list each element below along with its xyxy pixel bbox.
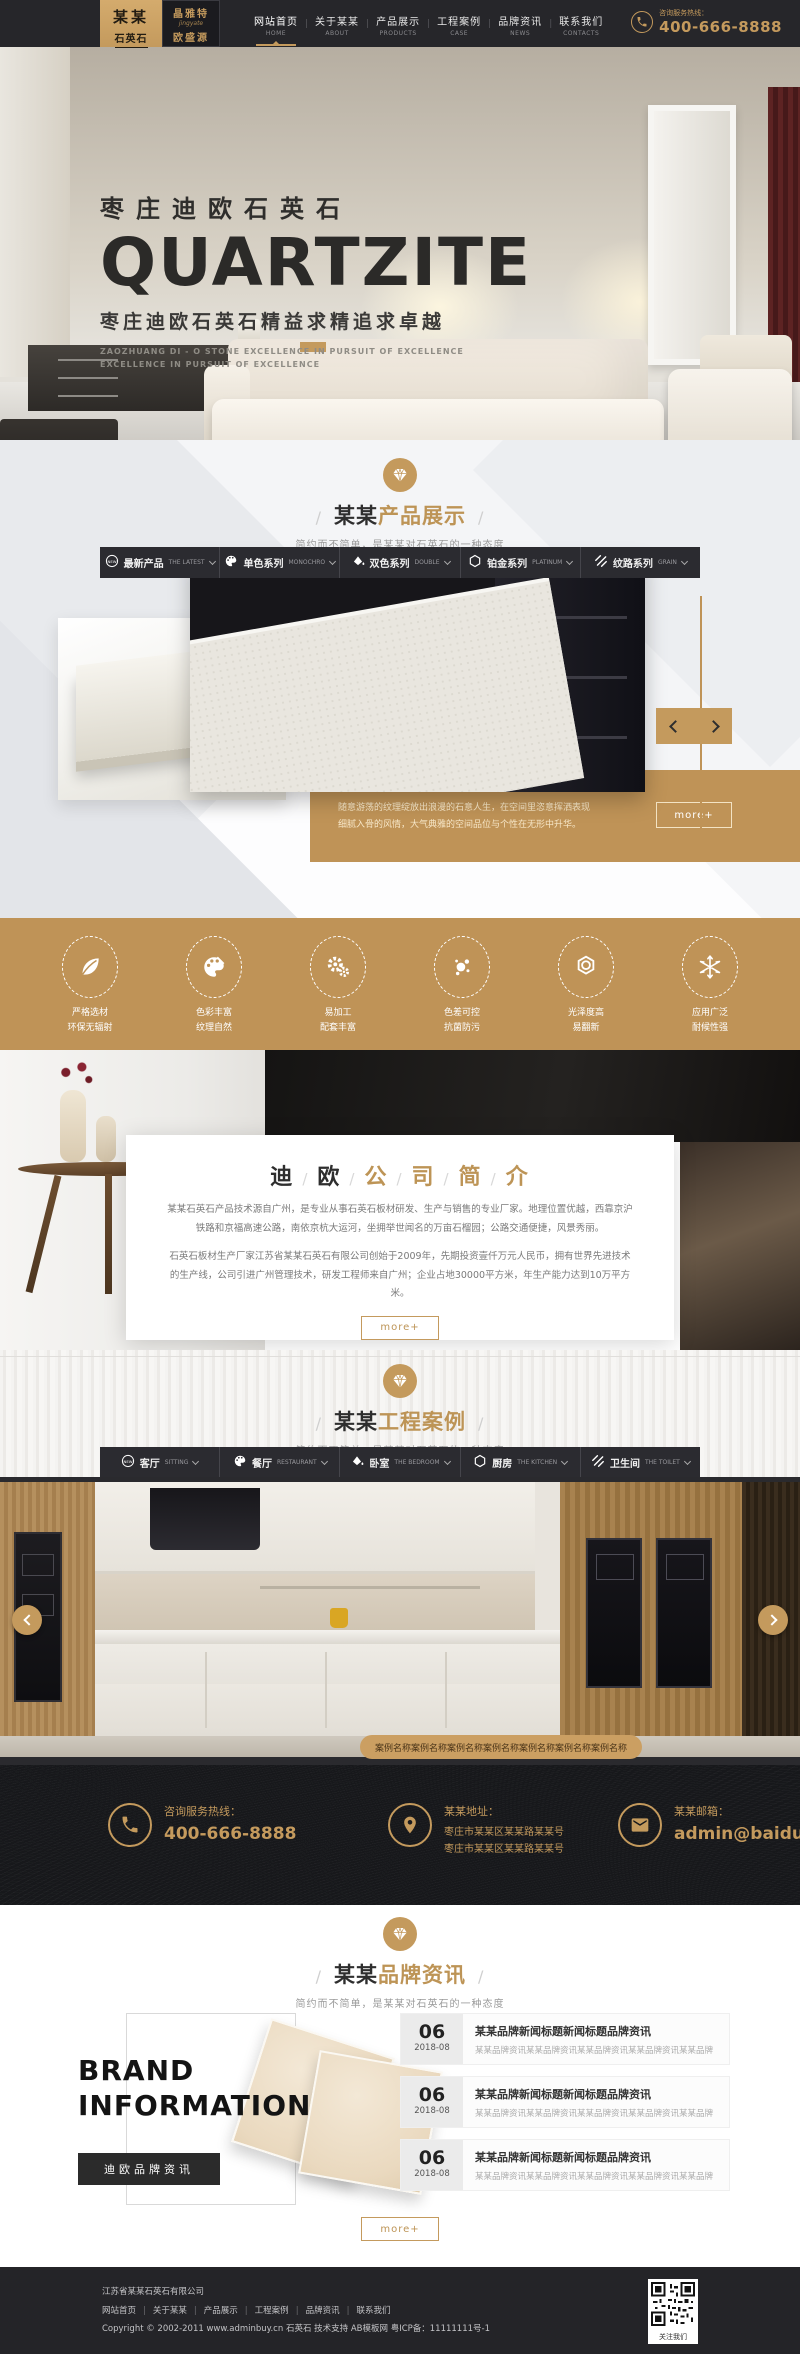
logo[interactable]: 某某 石英石 (100, 0, 162, 47)
contact-email-label: 某某邮箱： (674, 1803, 800, 1819)
footer-copyright: Copyright © 2002-2011 www.adminbuy.cn 石英… (102, 2320, 490, 2339)
feature-label: 配套丰富 (302, 1021, 374, 1036)
contact-address-line1: 枣庄市某某区某某路某某号 (444, 1824, 564, 1841)
contact-address-label: 某某地址： (444, 1803, 564, 1819)
tab-label: 客厅 (140, 1455, 160, 1470)
palette-icon (224, 553, 238, 572)
about-paragraph-2: 石英石板材生产厂家江苏省某某石英石有限公司创始于2009年，先期投资壹仟万元人民… (165, 1248, 635, 1304)
nav-item-home[interactable]: 网站首页 HOME (248, 11, 304, 37)
feature-label: 应用广泛 (674, 1006, 746, 1021)
tab-label-en: GRAIN (658, 559, 677, 566)
carousel-arrows (656, 708, 732, 744)
hero-photo-wall (0, 47, 70, 377)
nav-label: 产品展示 (370, 13, 426, 28)
tab-label-en: THE BEDROOM (394, 1459, 439, 1466)
palette-icon (233, 1453, 247, 1472)
phone-icon (631, 11, 653, 33)
next-arrow-icon (766, 1614, 777, 1625)
hotline-number: 400-666-8888 (659, 18, 782, 36)
footer-company: 江苏省某某石英石有限公司 (102, 2283, 490, 2302)
tab-toilet[interactable]: 卫生间 THE TOILET (581, 1447, 700, 1477)
tab-label: 最新产品 (124, 555, 164, 570)
products-section: /某某产品展示/ 简约而不简单，是某某对石英石的一种态度 NEW 最新产品 TH… (0, 440, 800, 918)
nav-label: 联系我们 (553, 13, 609, 28)
footer-link-contacts[interactable]: 联系我们 (356, 2306, 390, 2316)
title-prefix: 某某 (334, 504, 378, 528)
tab-label-en: THE KITCHEN (517, 1459, 557, 1466)
products-title: /某某产品展示/ (0, 500, 800, 530)
footer-links: 网站首页关于某某产品展示工程案例品牌资讯联系我们 (102, 2302, 490, 2321)
tab-kitchen[interactable]: 厨房 THE KITCHEN (461, 1447, 581, 1477)
feature-label: 严格选材 (54, 1006, 126, 1021)
hero-caption-line1: ZAOZHUANG DI - O STONE EXCELLENCE IN PUR… (100, 346, 532, 359)
about-photo-dark-room (265, 1050, 800, 1142)
news-day: 06 (401, 2084, 463, 2106)
case-slider: 案例名称案例名称案例名称案例名称案例名称案例名称案例名称 (0, 1477, 800, 1765)
palette-icon (186, 936, 242, 998)
cases-title: /某某工程案例/ (0, 1406, 800, 1436)
news-item[interactable]: 06 2018-08 某某品牌新闻标题新闻标题品牌资讯 某某品牌资讯某某品牌资讯… (400, 2139, 730, 2191)
news-item[interactable]: 06 2018-08 某某品牌新闻标题新闻标题品牌资讯 某某品牌资讯某某品牌资讯… (400, 2013, 730, 2065)
hero-photo-chair-seat (668, 369, 792, 440)
tab-label: 卫生间 (610, 1455, 640, 1470)
leaf-icon (62, 936, 118, 998)
feature-processing: 易加工配套丰富 (302, 936, 374, 1050)
gears-icon (310, 936, 366, 998)
logo-secondary: 晶雅特 jingyate 欧盛源 (162, 0, 220, 47)
hero-photo-mirror (648, 105, 736, 365)
nav-label: 关于某某 (309, 13, 365, 28)
location-pin-icon (388, 1803, 432, 1847)
brand-information-block: BRAND INFORMATION 迪欧品牌资讯 (78, 2005, 408, 2220)
nav-label-en: CONTACTS (553, 30, 609, 37)
feature-durability: 应用广泛耐候性强 (674, 936, 746, 1050)
nav-item-products[interactable]: 产品展示 PRODUCTS (370, 11, 426, 37)
prev-arrow-icon[interactable] (669, 720, 682, 733)
news-date: 2018-08 (401, 2169, 463, 2179)
caption-line1: 随意游荡的纹理绽放出浪漫的石意人生，在空间里恣意挥洒表现 (338, 800, 590, 817)
page: 某某 石英石 晶雅特 jingyate 欧盛源 网站首页 HOME | 关于某某… (0, 0, 800, 2354)
chevron-down-icon (192, 1457, 199, 1464)
feature-label: 易翻新 (550, 1021, 622, 1036)
svg-text:NEW: NEW (123, 1458, 132, 1463)
nav-item-case[interactable]: 工程案例 CASE (431, 11, 487, 37)
brand-news-button[interactable]: 迪欧品牌资讯 (78, 2153, 220, 2185)
feature-antibacterial: 色差可控抗菌防污 (426, 936, 498, 1050)
stripes-icon (594, 553, 608, 572)
nav-item-about[interactable]: 关于某某 ABOUT (309, 11, 365, 37)
tab-label: 铂金系列 (487, 555, 527, 570)
logo-brand1: 晶雅特 (163, 5, 219, 20)
contact-address: 某某地址： 枣庄市某某区某某路某某号 枣庄市某某区某某路某某号 (388, 1803, 564, 1858)
nav-item-contacts[interactable]: 联系我们 CONTACTS (553, 11, 609, 37)
title-main: 品牌资讯 (378, 1963, 466, 1987)
tab-double-color-series[interactable]: 双色系列 DOUBLE (340, 547, 460, 578)
tab-label: 卧室 (369, 1455, 389, 1470)
hero-photo-ottoman (0, 419, 118, 440)
logo-brand2: 欧盛源 (163, 29, 219, 44)
hero-banner: 枣庄迪欧石英石 QUARTZITE 枣庄迪欧石英石精益求精追求卓越 ZAOZHU… (0, 47, 800, 440)
news-list: 06 2018-08 某某品牌新闻标题新闻标题品牌资讯 某某品牌资讯某某品牌资讯… (400, 2013, 730, 2202)
nav-label-en: ABOUT (309, 30, 365, 37)
qr-code: 关注我们 (648, 2279, 698, 2344)
footer-link-products[interactable]: 产品展示 (204, 2306, 255, 2316)
hotline-label: 咨询服务热线： (659, 8, 782, 18)
feature-label: 光泽度高 (550, 1006, 622, 1021)
tab-label-en: PLATINUM (532, 559, 562, 566)
contact-email-value: admin@baidu.com (674, 1824, 800, 1844)
snowflake-icon (682, 936, 738, 998)
slider-next-button[interactable] (758, 1605, 788, 1635)
tab-label: 单色系列 (243, 555, 283, 570)
products-more-button[interactable]: more+ (656, 802, 732, 828)
contact-hotline-number: 400-666-8888 (164, 1824, 296, 1844)
feature-material: 严格选材环保无辐射 (54, 936, 126, 1050)
diamond-icon (383, 458, 417, 492)
nav-label-en: HOME (248, 30, 304, 37)
tab-restaurant[interactable]: 餐厅 RESTAURANT (220, 1447, 340, 1477)
contact-hotline: 咨询服务热线： 400-666-8888 (108, 1803, 296, 1847)
chevron-down-icon (321, 1457, 328, 1464)
news-day: 06 (401, 2147, 463, 2169)
chevron-down-icon (209, 558, 216, 565)
diamond-icon (383, 1364, 417, 1398)
footer-link-news[interactable]: 品牌资讯 (306, 2306, 357, 2316)
hero-text: 枣庄迪欧石英石 QUARTZITE 枣庄迪欧石英石精益求精追求卓越 ZAOZHU… (100, 189, 532, 372)
header: 某某 石英石 晶雅特 jingyate 欧盛源 网站首页 HOME | 关于某某… (0, 0, 800, 47)
cases-section-head: /某某工程案例/ 简约而不简单，是某某对石英石的一种态度 NEW 客厅 SITT… (0, 1350, 800, 1477)
chevron-down-icon (443, 558, 450, 565)
tab-label: 双色系列 (370, 555, 410, 570)
feature-label: 抗菌防污 (426, 1021, 498, 1036)
tab-platinum-series[interactable]: 铂金系列 PLATINUM (461, 547, 581, 578)
title-prefix: 某某 (334, 1963, 378, 1987)
nav-label: 品牌资讯 (492, 13, 548, 28)
news-item-title: 某某品牌新闻标题新闻标题品牌资讯 (475, 2149, 713, 2165)
product-main-image[interactable] (190, 556, 645, 792)
tab-label-en: MONOCHRO (288, 559, 325, 566)
contact-address-line2: 枣庄市某某区某某路某某号 (444, 1841, 564, 1858)
tab-label-en: SITTING (165, 1459, 189, 1466)
nav-label: 网站首页 (248, 13, 304, 28)
hero-caption: ZAOZHUANG DI - O STONE EXCELLENCE IN PUR… (100, 346, 532, 372)
contact-email: 某某邮箱： admin@baidu.com (618, 1803, 800, 1847)
mail-icon (618, 1803, 662, 1847)
chevron-down-icon (684, 1457, 691, 1464)
about-title: 迪欧公司简介 (126, 1159, 674, 1191)
products-section-head: /某某产品展示/ 简约而不简单，是某某对石英石的一种态度 (0, 458, 800, 551)
nav-label-en: CASE (431, 30, 487, 37)
caption-line2: 细腻入骨的风情，大气典雅的空间品位与个性在无形中升华。 (338, 817, 590, 834)
nav-label-en: PRODUCTS (370, 30, 426, 37)
feature-label: 环保无辐射 (54, 1021, 126, 1036)
hero-caption-line2: EXCELLENCE IN PURSUIT OF EXCELLENCE (100, 359, 532, 372)
chevron-down-icon (561, 1457, 568, 1464)
news-date: 2018-08 (401, 2106, 463, 2116)
product-caption: 随意游荡的纹理绽放出浪漫的石意人生，在空间里恣意挥洒表现 细腻入骨的风情，大气典… (338, 800, 590, 834)
chevron-down-icon (444, 1457, 451, 1464)
prev-arrow-icon (23, 1614, 34, 1625)
news-item-title: 某某品牌新闻标题新闻标题品牌资讯 (475, 2086, 713, 2102)
tab-label-en: THE TOILET (645, 1459, 680, 1466)
main-nav: 网站首页 HOME | 关于某某 ABOUT | 产品展示 PRODUCTS |… (248, 0, 609, 47)
footer: 江苏省某某石英石有限公司 网站首页关于某某产品展示工程案例品牌资讯联系我们 Co… (0, 2267, 800, 2354)
about-section: 迪欧公司简介 某某石英石产品技术源自广州，是专业从事石英石板材研发、生产与销售的… (0, 1050, 800, 1350)
contact-hotline-label: 咨询服务热线： (164, 1803, 296, 1819)
contact-bar: 咨询服务热线： 400-666-8888 某某地址： 枣庄市某某区某某路某某号 … (0, 1765, 800, 1905)
case-name-caption[interactable]: 案例名称案例名称案例名称案例名称案例名称案例名称案例名称 (360, 1735, 642, 1759)
qr-label: 关注我们 (651, 2332, 695, 2342)
tab-label-en: RESTAURANT (277, 1459, 317, 1466)
hero-subtitle: 枣庄迪欧石英石精益求精追求卓越 (100, 307, 532, 334)
tab-label: 餐厅 (252, 1455, 272, 1470)
footer-link-case[interactable]: 工程案例 (255, 2306, 306, 2316)
logo-name-bottom: 石英石 (115, 30, 148, 48)
nav-label: 工程案例 (431, 13, 487, 28)
feature-label: 色彩丰富 (178, 1006, 250, 1021)
feature-label: 色差可控 (426, 1006, 498, 1021)
features-bar: 严格选材环保无辐射 色彩丰富纹理自然 易加工配套丰富 色差可控抗菌防污 光泽度高… (0, 918, 800, 1050)
news-item-excerpt: 某某品牌资讯某某品牌资讯某某品牌资讯某某品牌资讯某某品牌 (475, 2044, 713, 2056)
footer-link-about[interactable]: 关于某某 (153, 2306, 204, 2316)
title-main: 产品展示 (378, 504, 466, 528)
case-slide-kitchen-photo (0, 1482, 800, 1757)
news-title: /某某品牌资讯/ (0, 1959, 800, 1989)
case-filter-tabs: NEW 客厅 SITTING 餐厅 RESTAURANT 卧室 THE BEDR… (100, 1447, 700, 1477)
slider-prev-button[interactable] (12, 1605, 42, 1635)
tab-label-en: THE LATEST (169, 559, 205, 566)
chevron-down-icon (329, 558, 336, 565)
news-item-excerpt: 某某品牌资讯某某品牌资讯某某品牌资讯某某品牌资讯某某品牌 (475, 2170, 713, 2182)
news-item-title: 某某品牌新闻标题新闻标题品牌资讯 (475, 2023, 713, 2039)
logo-brand1-en: jingyate (163, 20, 219, 27)
chevron-down-icon (681, 558, 688, 565)
about-photo-bathroom (680, 1142, 800, 1350)
phone-icon (108, 1803, 152, 1847)
feature-color: 色彩丰富纹理自然 (178, 936, 250, 1050)
new-badge-icon: NEW (105, 553, 119, 572)
tab-latest-products[interactable]: NEW 最新产品 THE LATEST (100, 547, 220, 578)
svg-text:NEW: NEW (107, 559, 116, 564)
tab-sitting-room[interactable]: NEW 客厅 SITTING (100, 1447, 220, 1477)
new-badge-icon: NEW (121, 1453, 135, 1472)
news-item[interactable]: 06 2018-08 某某品牌新闻标题新闻标题品牌资讯 某某品牌资讯某某品牌资讯… (400, 2076, 730, 2128)
diamond-icon (383, 1917, 417, 1951)
hexagon-icon (468, 553, 482, 572)
news-item-excerpt: 某某品牌资讯某某品牌资讯某某品牌资讯某某品牌资讯某某品牌 (475, 2107, 713, 2119)
hexagon-icon (473, 1453, 487, 1472)
tab-grain-series[interactable]: 纹路系列 GRAIN (581, 547, 700, 578)
gem-icon (558, 936, 614, 998)
next-arrow-icon[interactable] (707, 720, 720, 733)
hero-title-en: QUARTZITE (100, 228, 532, 297)
paint-bucket-icon (351, 553, 365, 572)
brand-heading: BRAND INFORMATION (78, 2053, 311, 2123)
company-intro-card: 迪欧公司简介 某某石英石产品技术源自广州，是专业从事石英石板材研发、生产与销售的… (126, 1135, 674, 1340)
hero-photo-sofa-seat (212, 399, 664, 440)
nav-label-en: NEWS (492, 30, 548, 37)
hero-title-zh: 枣庄迪欧石英石 (100, 189, 532, 224)
product-filter-tabs: NEW 最新产品 THE LATEST 单色系列 MONOCHRO 双色系列 D… (100, 547, 700, 578)
title-main: 工程案例 (378, 1410, 466, 1434)
paint-bucket-icon (350, 1453, 364, 1472)
feature-label: 耐候性强 (674, 1021, 746, 1036)
tab-monochrome-series[interactable]: 单色系列 MONOCHRO (220, 547, 340, 578)
nav-item-news[interactable]: 品牌资讯 NEWS (492, 11, 548, 37)
dots-icon (434, 936, 490, 998)
logo-name-top: 某某 (100, 6, 162, 27)
about-paragraph-1: 某某石英石产品技术源自广州，是专业从事石英石板材研发、生产与销售的专业厂家。地理… (165, 1201, 635, 1238)
tab-bedroom[interactable]: 卧室 THE BEDROOM (340, 1447, 460, 1477)
header-hotline: 咨询服务热线： 400-666-8888 (631, 8, 782, 36)
chevron-down-icon (566, 558, 573, 565)
tab-label: 厨房 (492, 1455, 512, 1470)
feature-gloss: 光泽度高易翻新 (550, 936, 622, 1050)
feature-label: 易加工 (302, 1006, 374, 1021)
news-more-button[interactable]: more+ (361, 2217, 439, 2241)
title-prefix: 某某 (334, 1410, 378, 1434)
news-date: 2018-08 (401, 2043, 463, 2053)
news-section: /某某品牌资讯/ 简约而不简单，是某某对石英石的一种态度 BRAND INFOR… (0, 1905, 800, 2267)
tab-label: 纹路系列 (613, 555, 653, 570)
about-more-button[interactable]: more+ (361, 1316, 439, 1340)
tab-label-en: DOUBLE (415, 559, 440, 566)
feature-label: 纹理自然 (178, 1021, 250, 1036)
stripes-icon (591, 1453, 605, 1472)
footer-link-home[interactable]: 网站首页 (102, 2306, 153, 2316)
news-day: 06 (401, 2021, 463, 2043)
